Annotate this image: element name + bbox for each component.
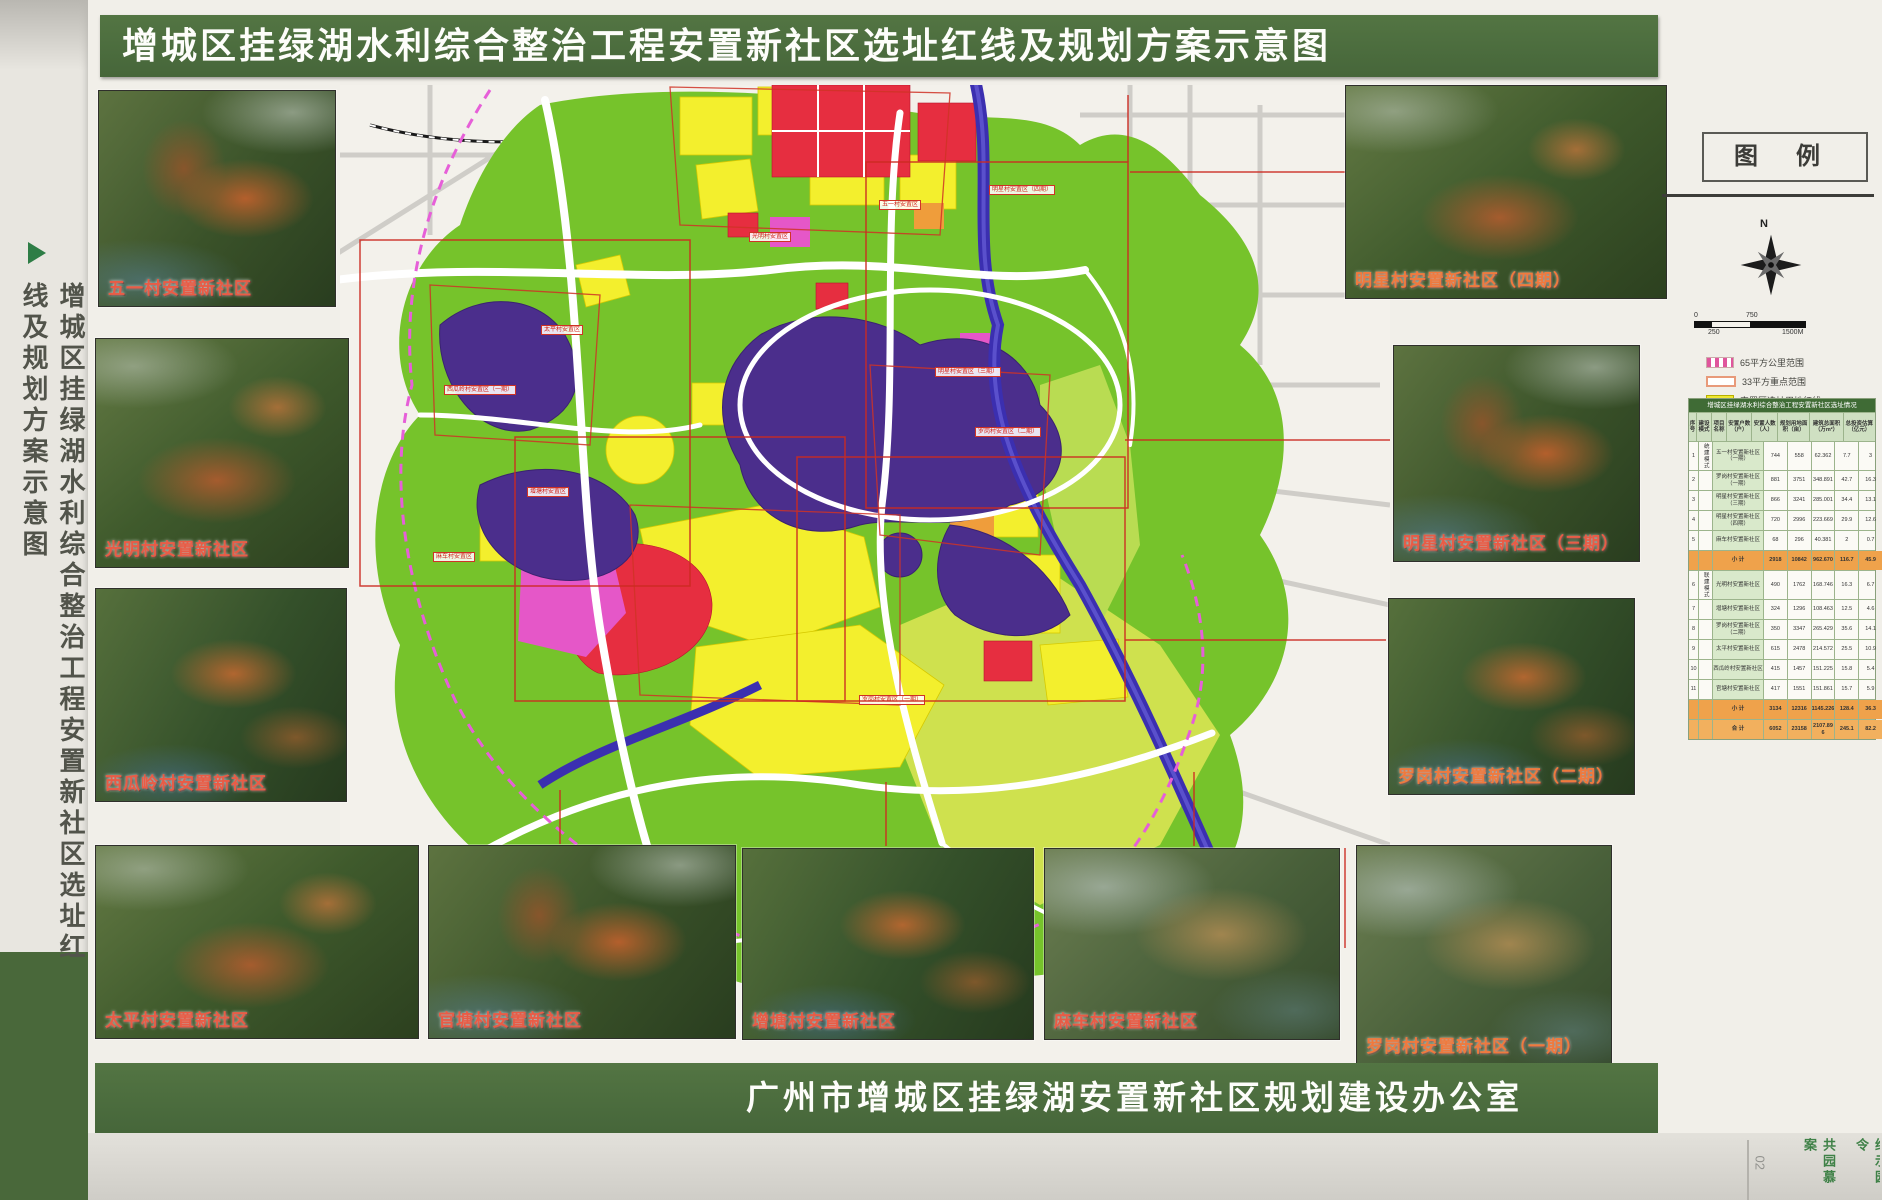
cell-index: 2 [1689, 471, 1698, 490]
legend-swatch-icon [1706, 357, 1734, 368]
cell-investment: 5.4 [1858, 660, 1882, 679]
cell-floor-area: 128.4 [1834, 700, 1858, 719]
cell-people: 296 [1787, 531, 1811, 550]
photo-label: 西瓜岭村安置新社区 [105, 769, 267, 794]
cell-floor-area: 12.5 [1834, 600, 1858, 619]
edge-text: 共园慕案 [1800, 1138, 1838, 1200]
cell-investment: 14.1 [1858, 620, 1882, 639]
cell-build-mode [1698, 491, 1712, 510]
cell-index: 1 [1689, 442, 1698, 470]
cell-index: 3 [1689, 491, 1698, 510]
photo-label: 明星村安置新社区（三期） [1403, 529, 1619, 554]
scale-tick: 1500M [1782, 329, 1803, 336]
cell-households: 2918 [1763, 551, 1787, 570]
table-row: 6 联建模式 光明村安置新社区 490 1762 168.746 16.3 6.… [1689, 570, 1875, 599]
legend-item-label: 33平方重点范围 [1742, 375, 1806, 388]
cell-build-mode: 联建模式 [1698, 571, 1712, 599]
cell-people: 10842 [1787, 551, 1811, 570]
cell-index: 11 [1689, 680, 1698, 699]
photo-label: 五一村安置新社区 [108, 274, 252, 299]
photo-taiping-community: 太平村安置新社区 [95, 845, 419, 1039]
cell-investment: 6.7 [1858, 571, 1882, 599]
table-row: 3 明星村安置新社区（三期） 866 3241 285.001 34.4 13.… [1689, 490, 1875, 510]
footer-banner: 广州市增城区挂绿湖安置新社区规划建设办公室 [95, 1063, 1658, 1133]
table-header-cell: 建筑总面积（万m²） [1809, 413, 1842, 441]
table-row: 1 统建模式 五一村安置新社区（一期） 744 558 62.362 7.7 3 [1689, 441, 1875, 470]
footer-office-name: 广州市增城区挂绿湖安置新社区规划建设办公室 [95, 1063, 1658, 1133]
cell-floor-area: 34.4 [1834, 491, 1858, 510]
cell-project: 太平村安置新社区 [1712, 640, 1763, 659]
cell-investment: 13.1 [1858, 491, 1882, 510]
triangle-bullet-icon [28, 242, 46, 264]
cell-project: 小 计 [1712, 551, 1763, 570]
photo-mingxing-phase3-community: 明星村安置新社区（三期） [1393, 345, 1640, 562]
cell-build-mode [1698, 720, 1712, 739]
cell-project: 五一村安置新社区（一期） [1712, 442, 1763, 470]
cell-index: 5 [1689, 531, 1698, 550]
cell-investment: 12.6 [1858, 511, 1882, 530]
cell-project: 明星村安置新社区（四期） [1712, 511, 1763, 530]
cell-project: 小 计 [1712, 700, 1763, 719]
cell-households: 744 [1763, 442, 1787, 470]
cell-people: 3751 [1787, 471, 1811, 490]
table-header-cell: 序号 [1689, 413, 1696, 441]
cell-project: 麻车村安置新社区 [1712, 531, 1763, 550]
legend-divider [1662, 194, 1874, 197]
cell-project: 西瓜岭村安置新社区 [1712, 660, 1763, 679]
photo-xigualing-community: 西瓜岭村安置新社区 [95, 588, 347, 802]
cell-households: 68 [1763, 531, 1787, 550]
cell-people: 3347 [1787, 620, 1811, 639]
scale-tick: 750 [1746, 312, 1758, 319]
cell-people: 23158 [1787, 720, 1811, 739]
map-scale-bar: 0 750 250 1500M [1694, 312, 1810, 338]
scale-tick: 250 [1708, 329, 1720, 336]
cell-land-area: 285.001 [1811, 491, 1835, 510]
edge-text: 给示园令 [1852, 1138, 1880, 1200]
table-row: 8 罗岗村安置新社区（二期） 350 3347 265.429 35.6 14.… [1689, 619, 1875, 639]
scale-bar-segment [1712, 321, 1750, 328]
cell-floor-area: 35.6 [1834, 620, 1858, 639]
cell-households: 6052 [1763, 720, 1787, 739]
cell-people: 12316 [1787, 700, 1811, 719]
cell-investment: 5.9 [1858, 680, 1882, 699]
cell-build-mode [1698, 700, 1712, 719]
cell-floor-area: 16.3 [1834, 571, 1858, 599]
table-body: 1 统建模式 五一村安置新社区（一期） 744 558 62.362 7.7 3… [1689, 441, 1875, 739]
cell-build-mode [1698, 620, 1712, 639]
table-row: 7 增塘村安置新社区 324 1296 108.463 12.5 4.6 [1689, 599, 1875, 619]
cell-land-area: 2107.896 [1811, 720, 1835, 739]
map-area-label: 增塘村安置区 [527, 487, 569, 497]
table-row: 5 麻车村安置新社区 68 296 40.381 2 0.7 [1689, 530, 1875, 550]
table-row: 4 明星村安置新社区（四期） 720 2996 223.669 29.9 12.… [1689, 510, 1875, 530]
cell-land-area: 151.225 [1811, 660, 1835, 679]
cell-investment: 4.6 [1858, 600, 1882, 619]
table-row: 9 太平村安置新社区 615 2478 214.572 25.5 10.9 [1689, 639, 1875, 659]
cell-land-area: 40.381 [1811, 531, 1835, 550]
page-number: 02 [1753, 1156, 1768, 1176]
cell-index: 8 [1689, 620, 1698, 639]
cell-floor-area: 15.7 [1834, 680, 1858, 699]
table-row: 11 官塘村安置新社区 417 1551 151.861 15.7 5.9 [1689, 679, 1875, 699]
cell-floor-area: 116.7 [1834, 551, 1858, 570]
photo-zengtang-community: 增塘村安置新社区 [742, 848, 1034, 1040]
cell-index: 7 [1689, 600, 1698, 619]
table-header-cell: 总投资估算（亿元） [1843, 413, 1875, 441]
legend-item-label: 65平方公里范围 [1740, 356, 1804, 369]
map-area-label: 明星村安置区（三期） [935, 367, 1001, 377]
cell-land-area: 1145.226 [1811, 700, 1835, 719]
cell-floor-area: 42.7 [1834, 471, 1858, 490]
cell-land-area: 265.429 [1811, 620, 1835, 639]
cell-people: 2996 [1787, 511, 1811, 530]
cell-land-area: 62.362 [1811, 442, 1835, 470]
table-row: 小 计 3134 12316 1145.226 128.4 36.3 [1689, 699, 1875, 719]
photo-guantang-community: 官塘村安置新社区 [428, 845, 736, 1039]
cell-investment: 10.9 [1858, 640, 1882, 659]
legend-title-box: 图 例 [1702, 132, 1868, 182]
cell-project: 官塘村安置新社区 [1712, 680, 1763, 699]
table-row: 合 计 6052 23158 2107.896 245.1 82.2 [1689, 719, 1875, 739]
cell-project: 合 计 [1712, 720, 1763, 739]
cell-investment: 16.3 [1858, 471, 1882, 490]
compass-north-label: N [1760, 218, 1768, 230]
cell-investment: 0.7 [1858, 531, 1882, 550]
cell-index [1689, 551, 1698, 570]
table-header-cell: 安置人数（人） [1751, 413, 1776, 441]
cell-project: 明星村安置新社区（三期） [1712, 491, 1763, 510]
photo-luogang-phase2-community: 罗岗村安置新社区（二期） [1388, 598, 1635, 795]
table-row: 小 计 2918 10842 962.670 116.7 45.9 [1689, 550, 1875, 570]
cell-project: 罗岗村安置新社区（一期） [1712, 471, 1763, 490]
cell-households: 490 [1763, 571, 1787, 599]
cell-build-mode [1698, 531, 1712, 550]
cell-investment: 36.3 [1858, 700, 1882, 719]
left-green-block [0, 952, 88, 1200]
cell-build-mode [1698, 640, 1712, 659]
cell-land-area: 348.891 [1811, 471, 1835, 490]
table-header-row: 序号建设模式项目名称安置户数（户）安置人数（人）规划用地面积（亩）建筑总面积（万… [1689, 412, 1875, 441]
cell-index: 6 [1689, 571, 1698, 599]
cell-households: 417 [1763, 680, 1787, 699]
cell-project: 增塘村安置新社区 [1712, 600, 1763, 619]
cell-build-mode [1698, 680, 1712, 699]
cell-land-area: 962.670 [1811, 551, 1835, 570]
map-area-label: 五一村安置区 [879, 200, 921, 210]
cell-households: 881 [1763, 471, 1787, 490]
cell-people: 558 [1787, 442, 1811, 470]
photo-label: 罗岗村安置新社区（一期） [1366, 1032, 1582, 1057]
cell-people: 2478 [1787, 640, 1811, 659]
cell-floor-area: 29.9 [1834, 511, 1858, 530]
cell-floor-area: 7.7 [1834, 442, 1858, 470]
cell-households: 324 [1763, 600, 1787, 619]
map-area-label: 明星村安置区（四期） [989, 185, 1055, 195]
next-page-edge-text: 共园慕案 给示园令 [1800, 1138, 1880, 1200]
cell-land-area: 108.463 [1811, 600, 1835, 619]
table-header-cell: 项目名称 [1711, 413, 1726, 441]
photo-label: 太平村安置新社区 [105, 1006, 249, 1031]
map-area-label: 太平村安置区 [541, 325, 583, 335]
cell-index: 9 [1689, 640, 1698, 659]
side-vertical-title: 增城区挂绿湖水利综合整治工程安置新社区选址红线及规划方案示意图 [16, 282, 90, 982]
legend-item: 33平方重点范围 [1706, 375, 1876, 388]
compass-rose-icon: N [1736, 218, 1806, 304]
map-area-label: 罗岗村安置区（二期） [975, 427, 1041, 437]
table-header-cell: 规划用地面积（亩） [1777, 413, 1809, 441]
page-bottom-edge [0, 1133, 1882, 1200]
map-area-label: 罗岗村安置区（一期） [859, 695, 925, 705]
cell-index [1689, 700, 1698, 719]
cell-land-area: 223.669 [1811, 511, 1835, 530]
page-corner-shadow [0, 0, 88, 70]
map-area-label: 光明村安置区 [749, 232, 791, 242]
table-title: 增城区挂绿湖水利综合整治工程安置新社区选址情况 [1689, 399, 1875, 412]
cell-households: 866 [1763, 491, 1787, 510]
cell-people: 1296 [1787, 600, 1811, 619]
photo-mache-community: 麻车村安置新社区 [1044, 848, 1340, 1040]
cell-build-mode [1698, 511, 1712, 530]
resettlement-summary-table: 增城区挂绿湖水利综合整治工程安置新社区选址情况 序号建设模式项目名称安置户数（户… [1688, 398, 1876, 740]
cell-households: 615 [1763, 640, 1787, 659]
scale-bar-segment [1694, 321, 1806, 328]
cell-build-mode [1698, 471, 1712, 490]
cell-project: 光明村安置新社区 [1712, 571, 1763, 599]
cell-people: 1762 [1787, 571, 1811, 599]
cell-project: 罗岗村安置新社区（二期） [1712, 620, 1763, 639]
cell-households: 415 [1763, 660, 1787, 679]
cell-build-mode [1698, 551, 1712, 570]
photo-label: 麻车村安置新社区 [1054, 1007, 1198, 1032]
photo-label: 罗岗村安置新社区（二期） [1398, 762, 1614, 787]
table-header-cell: 安置户数（户） [1726, 413, 1751, 441]
cell-floor-area: 2 [1834, 531, 1858, 550]
cell-floor-area: 25.5 [1834, 640, 1858, 659]
cell-investment: 82.2 [1858, 720, 1882, 739]
cell-households: 720 [1763, 511, 1787, 530]
map-area-label: 西瓜岭村安置区（一期） [444, 385, 516, 395]
photo-guangming-community: 光明村安置新社区 [95, 338, 349, 568]
table-row: 10 西瓜岭村安置新社区 415 1457 151.225 15.8 5.4 [1689, 659, 1875, 679]
cell-land-area: 214.572 [1811, 640, 1835, 659]
photo-wuyi-community: 五一村安置新社区 [98, 90, 336, 307]
cell-people: 1551 [1787, 680, 1811, 699]
cell-build-mode [1698, 600, 1712, 619]
cell-households: 350 [1763, 620, 1787, 639]
table-header-cell: 建设模式 [1696, 413, 1711, 441]
cell-people: 1457 [1787, 660, 1811, 679]
cell-households: 3134 [1763, 700, 1787, 719]
poster-title: 增城区挂绿湖水利综合整治工程安置新社区选址红线及规划方案示意图 [100, 15, 1658, 77]
photo-luogang-phase1-community: 罗岗村安置新社区（一期） [1356, 845, 1612, 1065]
table-row: 2 罗岗村安置新社区（一期） 881 3751 348.891 42.7 16.… [1689, 470, 1875, 490]
cell-floor-area: 15.8 [1834, 660, 1858, 679]
cell-floor-area: 245.1 [1834, 720, 1858, 739]
photo-label: 官塘村安置新社区 [438, 1006, 582, 1031]
map-area-label: 麻车村安置区 [433, 552, 475, 562]
photo-label: 光明村安置新社区 [105, 535, 249, 560]
cell-investment: 3 [1858, 442, 1882, 470]
cell-land-area: 151.861 [1811, 680, 1835, 699]
cell-index: 4 [1689, 511, 1698, 530]
photo-label: 明星村安置新社区（四期） [1355, 266, 1571, 291]
cell-index: 10 [1689, 660, 1698, 679]
cell-build-mode: 统建模式 [1698, 442, 1712, 470]
legend-swatch-icon [1706, 376, 1736, 387]
scale-tick: 0 [1694, 312, 1698, 319]
title-banner: 增城区挂绿湖水利综合整治工程安置新社区选址红线及规划方案示意图 [100, 15, 1658, 77]
cell-land-area: 168.746 [1811, 571, 1835, 599]
photo-label: 增塘村安置新社区 [752, 1007, 896, 1032]
cell-investment: 45.9 [1858, 551, 1882, 570]
legend-item: 65平方公里范围 [1706, 356, 1876, 369]
photo-mingxing-phase4-community: 明星村安置新社区（四期） [1345, 85, 1667, 299]
cell-index [1689, 720, 1698, 739]
cell-build-mode [1698, 660, 1712, 679]
page-fold-line [1747, 1140, 1749, 1200]
cell-people: 3241 [1787, 491, 1811, 510]
